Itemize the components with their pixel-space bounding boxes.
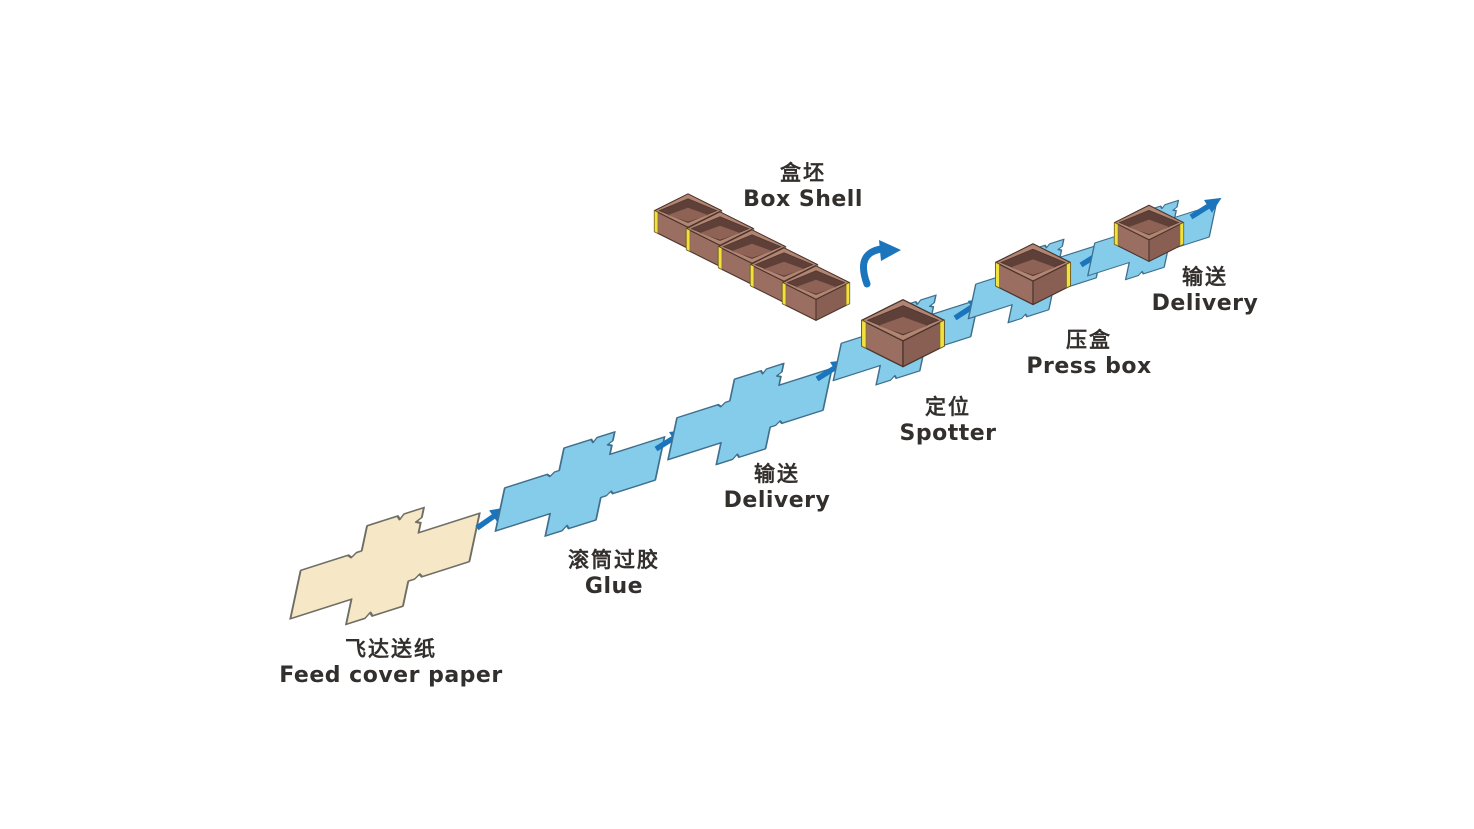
label-box-shell-zh: 盒坯 [743,160,863,186]
process-flow-diagram: 飞达送纸 Feed cover paper 滚筒过胶 Glue 输送 Deliv… [0,0,1474,829]
label-glue: 滚筒过胶 Glue [568,547,660,600]
label-glue-en: Glue [568,573,660,600]
label-box-shell: 盒坯 Box Shell [743,160,863,213]
label-spotter-en: Spotter [899,420,996,447]
label-feed-cover-paper-en: Feed cover paper [279,662,502,689]
label-delivery-1-en: Delivery [724,487,831,514]
label-delivery-1: 输送 Delivery [724,461,831,514]
label-feed-cover-paper-zh: 飞达送纸 [279,636,502,662]
label-press-box-en: Press box [1026,353,1151,380]
label-delivery-2: 输送 Delivery [1152,264,1259,317]
feed-paper-blank-shape [285,488,485,644]
label-glue-zh: 滚筒过胶 [568,547,660,573]
diagram-artwork [0,0,1474,829]
curved-arrow-icon [863,240,901,284]
label-box-shell-en: Box Shell [743,186,863,213]
glue-blank-shape [491,415,670,554]
label-spotter: 定位 Spotter [899,394,996,447]
label-delivery-2-zh: 输送 [1152,264,1259,290]
label-press-box: 压盒 Press box [1026,327,1151,380]
label-spotter-zh: 定位 [899,394,996,420]
label-feed-cover-paper: 飞达送纸 Feed cover paper [279,636,502,689]
label-press-box-zh: 压盒 [1026,327,1151,353]
label-delivery-2-en: Delivery [1152,290,1259,317]
label-delivery-1-zh: 输送 [724,461,831,487]
press-box-stage-shape [965,225,1108,336]
spotter-stage-shape [829,280,983,400]
